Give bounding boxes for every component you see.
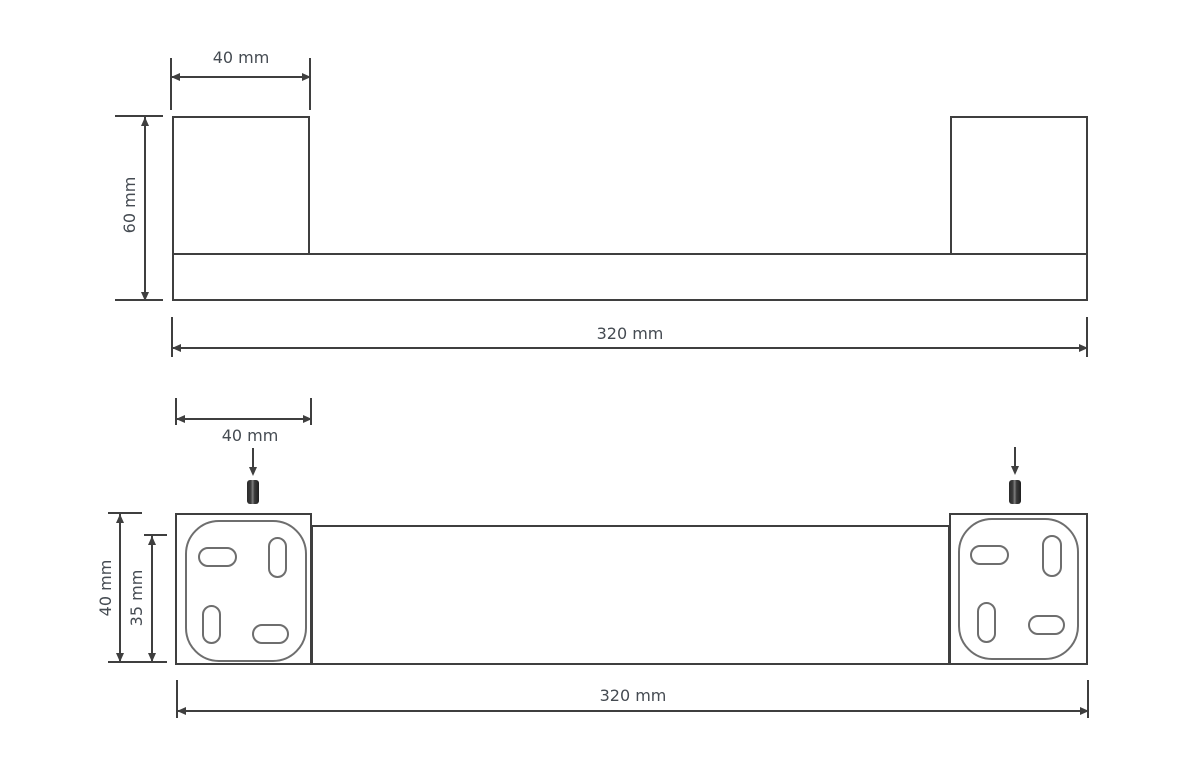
arrowhead-left-icon [172,344,181,352]
down-arrow-icon [1011,466,1019,475]
extension-tick [115,299,163,301]
right-mounting-plate [958,518,1079,660]
dimension-label: 40 mm [171,49,311,67]
right-bracket-front [950,116,1088,255]
dimension-line [144,117,146,301]
bar-plan [311,525,950,665]
dimension-label: 60 mm [121,145,139,265]
screw-icon [247,480,259,504]
dimension-line [171,76,311,78]
extension-tick [108,512,142,514]
dimension-label: 40 mm [97,528,115,648]
arrowhead-right-icon [1079,344,1088,352]
arrowhead-up-icon [148,536,156,545]
screw-slot [252,624,289,644]
screw-slot [268,537,287,578]
dimension-line [172,347,1088,349]
arrowhead-up-icon [116,514,124,523]
screw-slot [1028,615,1065,635]
arrowhead-down-icon [116,653,124,662]
arrowhead-left-icon [177,707,186,715]
dimension-line [119,514,121,662]
arrowhead-right-icon [302,73,311,81]
down-arrow-icon [249,467,257,476]
screw-slot [202,605,221,644]
pointer-line [1014,447,1016,467]
arrowhead-up-icon [141,117,149,126]
pointer-line [252,448,254,468]
bar-front [172,253,1088,301]
screw-slot [977,602,996,643]
dimension-label: 320 mm [177,687,1089,705]
screw-slot [970,545,1009,565]
dimension-line [176,418,312,420]
dimension-drawing: 40 mm 60 mm 320 mm [0,0,1200,762]
extension-tick [115,115,163,117]
dimension-line [177,710,1089,712]
arrowhead-left-icon [171,73,180,81]
arrowhead-down-icon [141,292,149,301]
arrowhead-right-icon [303,415,312,423]
left-bracket-front [172,116,310,255]
dimension-label: 35 mm [128,538,146,658]
dimension-line [151,536,153,662]
screw-icon [1009,480,1021,504]
arrowhead-down-icon [148,653,156,662]
screw-slot [198,547,237,567]
dimension-label: 40 mm [180,427,320,445]
screw-slot [1042,535,1062,577]
arrowhead-right-icon [1080,707,1089,715]
dimension-label: 320 mm [172,325,1088,343]
arrowhead-left-icon [176,415,185,423]
